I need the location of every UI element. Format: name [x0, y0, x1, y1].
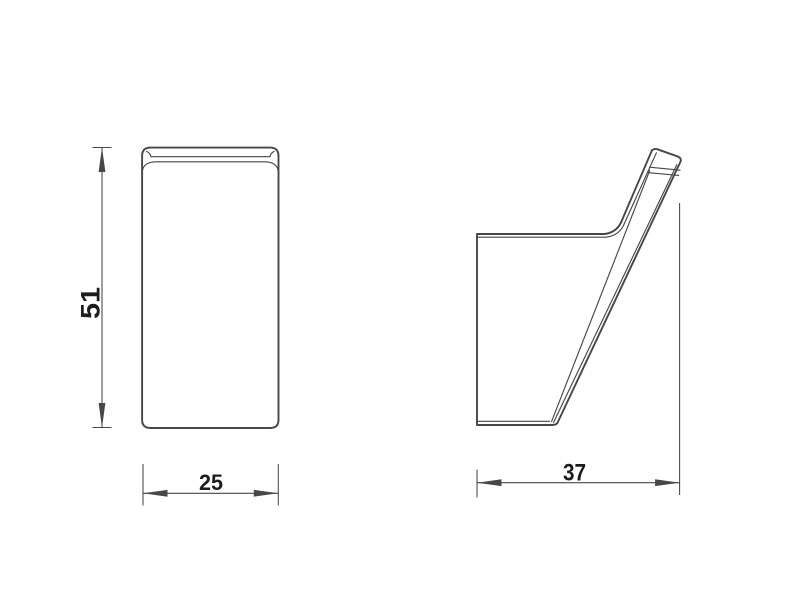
depth-dimension: 37 — [477, 203, 680, 498]
hook-prong-inner-face-line — [552, 171, 650, 422]
front-inner-top-line — [142, 162, 278, 171]
width-dimension: 25 — [143, 464, 278, 506]
technical-drawing-canvas: 51 25 37 — [0, 0, 800, 616]
front-view — [142, 148, 278, 428]
side-plate-outline — [477, 234, 605, 425]
height-dimension: 51 — [76, 148, 112, 428]
front-top-lip-line — [147, 151, 275, 156]
arrow-right-icon — [655, 479, 680, 486]
hook-prong-inner-right-line — [554, 165, 677, 423]
arrow-left-icon — [143, 490, 168, 497]
arrow-left-icon — [477, 479, 502, 486]
side-view — [477, 149, 681, 425]
arrow-up-icon — [99, 148, 106, 173]
arrow-right-icon — [254, 490, 278, 497]
height-dimension-label: 51 — [76, 287, 106, 319]
hook-prong-outer-right-edge — [557, 161, 680, 423]
width-dimension-label: 25 — [199, 470, 223, 495]
hook-cap-top-edge — [652, 149, 681, 161]
front-body-outline — [142, 148, 278, 428]
drawing-page: 51 25 37 — [0, 0, 800, 616]
arrow-down-icon — [99, 403, 106, 428]
depth-dimension-label: 37 — [563, 460, 586, 487]
hook-prong-outer-left-edge — [605, 150, 653, 234]
